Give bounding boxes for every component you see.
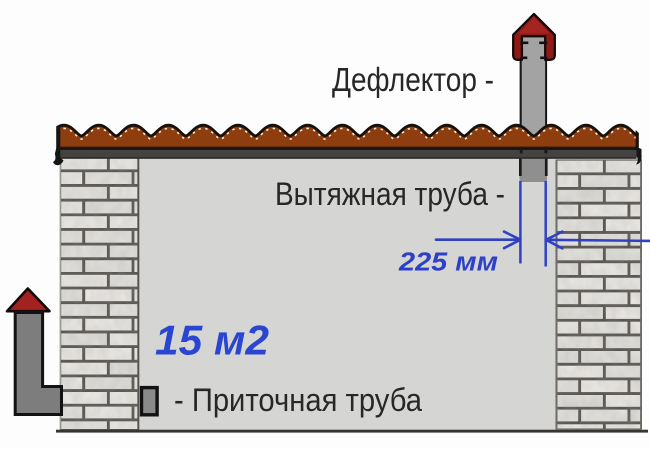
svg-text:- Приточная труба: - Приточная труба [174, 382, 423, 418]
svg-text:Дефлектор -: Дефлектор - [332, 61, 494, 98]
svg-text:Вытяжная труба -: Вытяжная труба - [275, 176, 505, 212]
svg-text:225 мм: 225 мм [398, 249, 498, 277]
svg-text:15 м2: 15 м2 [155, 317, 269, 364]
